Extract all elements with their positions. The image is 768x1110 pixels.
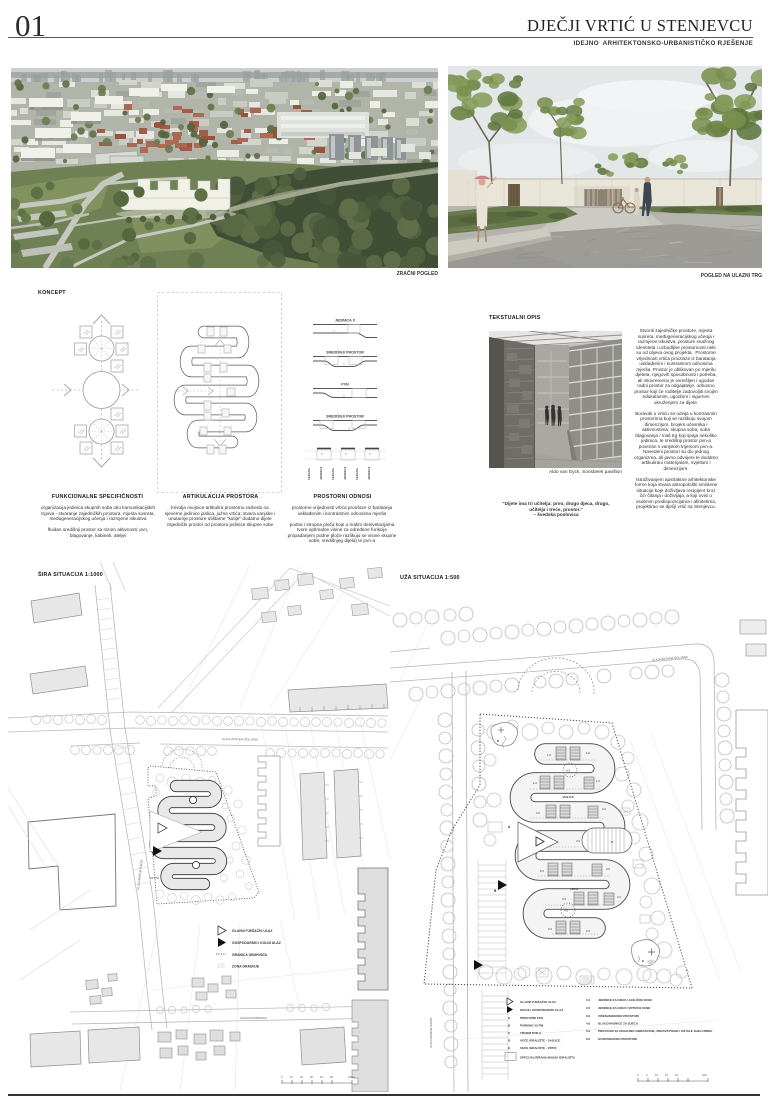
svg-text:E: E bbox=[508, 1046, 510, 1050]
svg-text:JEDINICA: JEDINICA bbox=[343, 466, 347, 480]
svg-text:0: 0 bbox=[637, 1073, 639, 1077]
svg-text:3.0: 3.0 bbox=[548, 927, 552, 931]
svg-text:50: 50 bbox=[330, 1075, 333, 1079]
svg-text:2.0: 2.0 bbox=[586, 929, 590, 933]
svg-text:B: B bbox=[508, 1024, 511, 1028]
svg-text:VIŠENAMJENSKI PROSTORI: VIŠENAMJENSKI PROSTORI bbox=[598, 1013, 639, 1018]
svg-text:SPECIJALIZIRANA MANJA IGRALIŠT: SPECIJALIZIRANA MANJA IGRALIŠTA bbox=[520, 1055, 576, 1060]
svg-text:40: 40 bbox=[320, 1075, 323, 1079]
svg-text:2.0: 2.0 bbox=[606, 867, 610, 871]
svg-text:3.0: 3.0 bbox=[586, 1014, 591, 1018]
svg-text:1.0: 1.0 bbox=[586, 998, 591, 1002]
svg-text:1.0: 1.0 bbox=[586, 751, 590, 755]
svg-text:VEĆE IGRALIŠTE - JASLICE: VEĆE IGRALIŠTE - JASLICE bbox=[520, 1038, 560, 1043]
svg-text:20m: 20m bbox=[702, 1073, 707, 1077]
svg-text:2.0: 2.0 bbox=[602, 807, 606, 811]
svg-text:15: 15 bbox=[665, 1073, 668, 1077]
svg-text:3.0: 3.0 bbox=[536, 811, 540, 815]
svg-text:TERASA: TERASA bbox=[331, 467, 335, 480]
svg-text:x: x bbox=[369, 452, 371, 456]
svg-text:5.0: 5.0 bbox=[540, 869, 544, 873]
svg-text:x: x bbox=[321, 452, 323, 456]
svg-text:E: E bbox=[642, 959, 644, 963]
svg-text:GLAVNI PJEŠAČKI ULAZ: GLAVNI PJEŠAČKI ULAZ bbox=[232, 928, 272, 933]
svg-text:PROSTORI ZA ODGOJNO-OBRAZOVNE,: PROSTORI ZA ODGOJNO-OBRAZOVNE, ZDRAVSTVE… bbox=[598, 1029, 712, 1033]
svg-text:KOLNI I GOSPODARSKI ULAZ: KOLNI I GOSPODARSKI ULAZ bbox=[520, 1008, 563, 1012]
svg-text:BLAGOVAONICE ZA DJECU: BLAGOVAONICE ZA DJECU bbox=[598, 1022, 638, 1026]
svg-text:JEDINICA X: JEDINICA X bbox=[335, 319, 356, 323]
svg-text:PVN: PVN bbox=[341, 383, 349, 387]
svg-text:GOSPODARSKI I KOLNI ULAZ: GOSPODARSKI I KOLNI ULAZ bbox=[232, 941, 281, 945]
svg-text:30: 30 bbox=[310, 1075, 313, 1079]
svg-text:JEDINICA: JEDINICA bbox=[367, 466, 371, 480]
svg-text:TERASA: TERASA bbox=[307, 467, 311, 480]
svg-text:ULICA ANTUNA ŠOLJANA: ULICA ANTUNA ŠOLJANA bbox=[652, 654, 688, 662]
svg-text:PARKING 52 PM: PARKING 52 PM bbox=[520, 1024, 544, 1028]
svg-text:ULICA KOTARNICA: ULICA KOTARNICA bbox=[240, 1016, 267, 1020]
svg-text:4.0: 4.0 bbox=[564, 909, 568, 913]
svg-text:JASLICE: JASLICE bbox=[562, 795, 574, 799]
svg-text:SREDIŠNJI PROSTOR: SREDIŠNJI PROSTOR bbox=[326, 350, 364, 355]
svg-text:5: 5 bbox=[646, 1073, 648, 1077]
svg-text:1.0: 1.0 bbox=[547, 753, 551, 757]
svg-text:JEDINICE ZA DJECU VRTIĆKE DOBI: JEDINICE ZA DJECU VRTIĆKE DOBI bbox=[598, 1005, 650, 1010]
svg-text:B: B bbox=[494, 889, 497, 893]
svg-text:JEDINICA: JEDINICA bbox=[319, 466, 323, 480]
svg-text:TERASA: TERASA bbox=[355, 467, 359, 480]
svg-text:ZONA GRADNJE: ZONA GRADNJE bbox=[232, 965, 260, 969]
svg-text:20: 20 bbox=[675, 1073, 678, 1077]
svg-text:10: 10 bbox=[290, 1075, 293, 1079]
svg-text:2.0: 2.0 bbox=[617, 895, 621, 899]
svg-text:2.0: 2.0 bbox=[586, 1006, 591, 1010]
svg-text:4.0: 4.0 bbox=[586, 1022, 591, 1026]
svg-text:20: 20 bbox=[300, 1075, 303, 1079]
svg-text:TRIJEM PVN-A: TRIJEM PVN-A bbox=[520, 1031, 542, 1035]
svg-text:x: x bbox=[345, 452, 347, 456]
svg-text:100m: 100m bbox=[348, 1075, 355, 1079]
svg-text:SREDIŠNJI PROSTOR: SREDIŠNJI PROSTOR bbox=[326, 414, 364, 419]
svg-text:5.0: 5.0 bbox=[586, 1029, 591, 1033]
svg-text:D: D bbox=[508, 1039, 511, 1043]
svg-text:52 PM: 52 PM bbox=[150, 876, 159, 880]
svg-text:JEDINICE ZA DJECU JASLIČKE DOB: JEDINICE ZA DJECU JASLIČKE DOBI bbox=[598, 997, 652, 1002]
svg-text:4.0: 4.0 bbox=[566, 769, 570, 773]
svg-text:C: C bbox=[508, 1031, 511, 1035]
svg-text:1.0: 1.0 bbox=[596, 779, 600, 783]
svg-text:VEĆE IGRALIŠTE - VRTIĆ: VEĆE IGRALIŠTE - VRTIĆ bbox=[520, 1045, 558, 1050]
svg-text:GRANICA OBUHVATA: GRANICA OBUHVATA bbox=[232, 953, 268, 957]
svg-text:3.0: 3.0 bbox=[562, 897, 566, 901]
svg-text:ULICA MARIJE RADIĆ: ULICA MARIJE RADIĆ bbox=[135, 858, 144, 890]
svg-text:A: A bbox=[508, 825, 511, 829]
svg-text:3.0: 3.0 bbox=[576, 839, 580, 843]
svg-text:0: 0 bbox=[281, 1075, 283, 1079]
svg-text:PRISTUPNI TRG: PRISTUPNI TRG bbox=[520, 1016, 544, 1020]
svg-text:VRTIĆ: VRTIĆ bbox=[570, 886, 578, 891]
svg-text:GLAVNI PJEŠAČKI ULAZ: GLAVNI PJEŠAČKI ULAZ bbox=[520, 999, 556, 1004]
svg-text:6.0: 6.0 bbox=[586, 1037, 591, 1041]
svg-text:GOSPODARSKI PROSTORI: GOSPODARSKI PROSTORI bbox=[598, 1037, 637, 1041]
svg-text:ULICA MARIJE RADIĆ: ULICA MARIJE RADIĆ bbox=[428, 1016, 433, 1048]
svg-text:A: A bbox=[508, 1016, 511, 1020]
svg-text:ULICA ANTUNA ŠOLJANA: ULICA ANTUNA ŠOLJANA bbox=[222, 736, 258, 742]
svg-text:1.0: 1.0 bbox=[533, 781, 537, 785]
svg-text:10: 10 bbox=[655, 1073, 658, 1077]
